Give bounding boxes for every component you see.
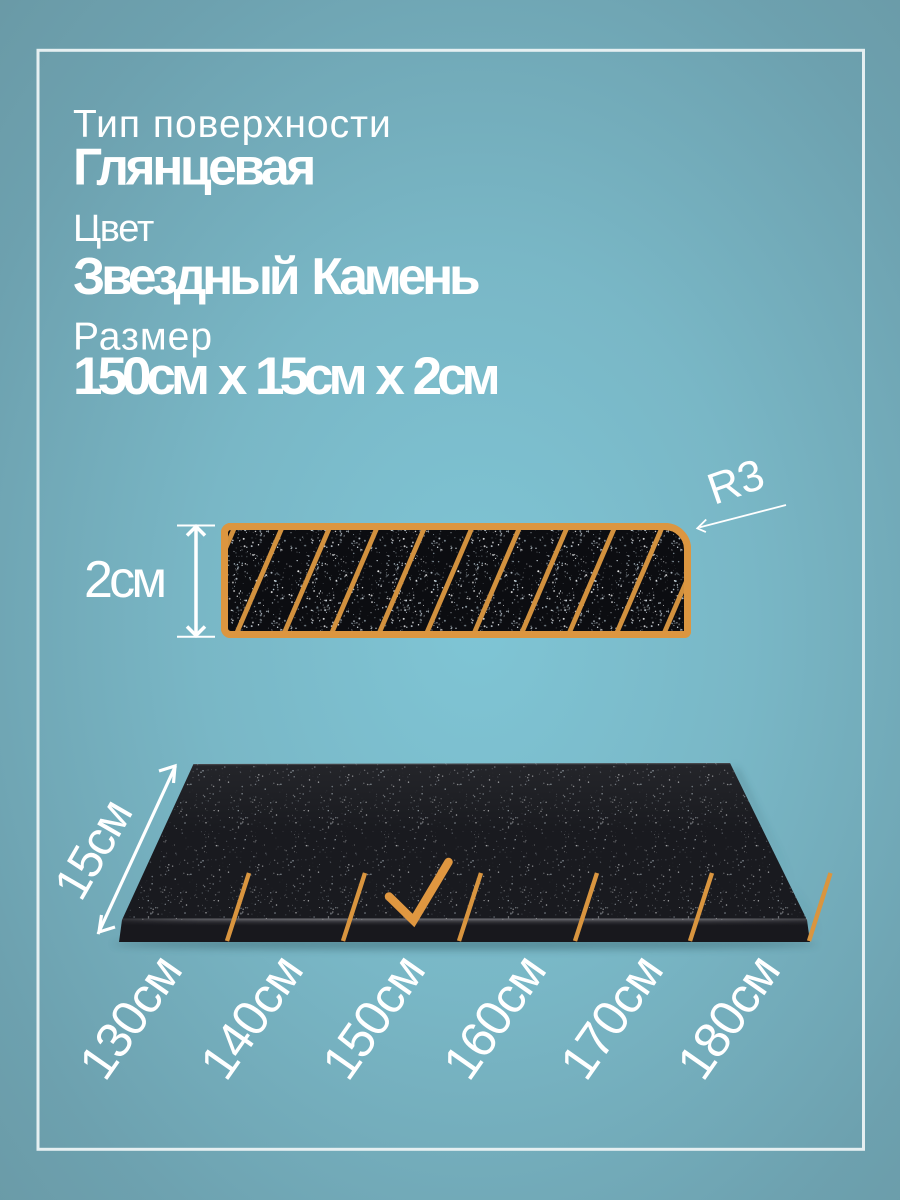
svg-text:Глянцевая: Глянцевая [73,138,313,196]
svg-text:Цвет: Цвет [73,208,154,250]
svg-text:Звездный Камень: Звездный Камень [73,247,479,305]
svg-text:150см х 15см х 2см: 150см х 15см х 2см [73,347,498,406]
svg-text:2см: 2см [84,551,164,609]
